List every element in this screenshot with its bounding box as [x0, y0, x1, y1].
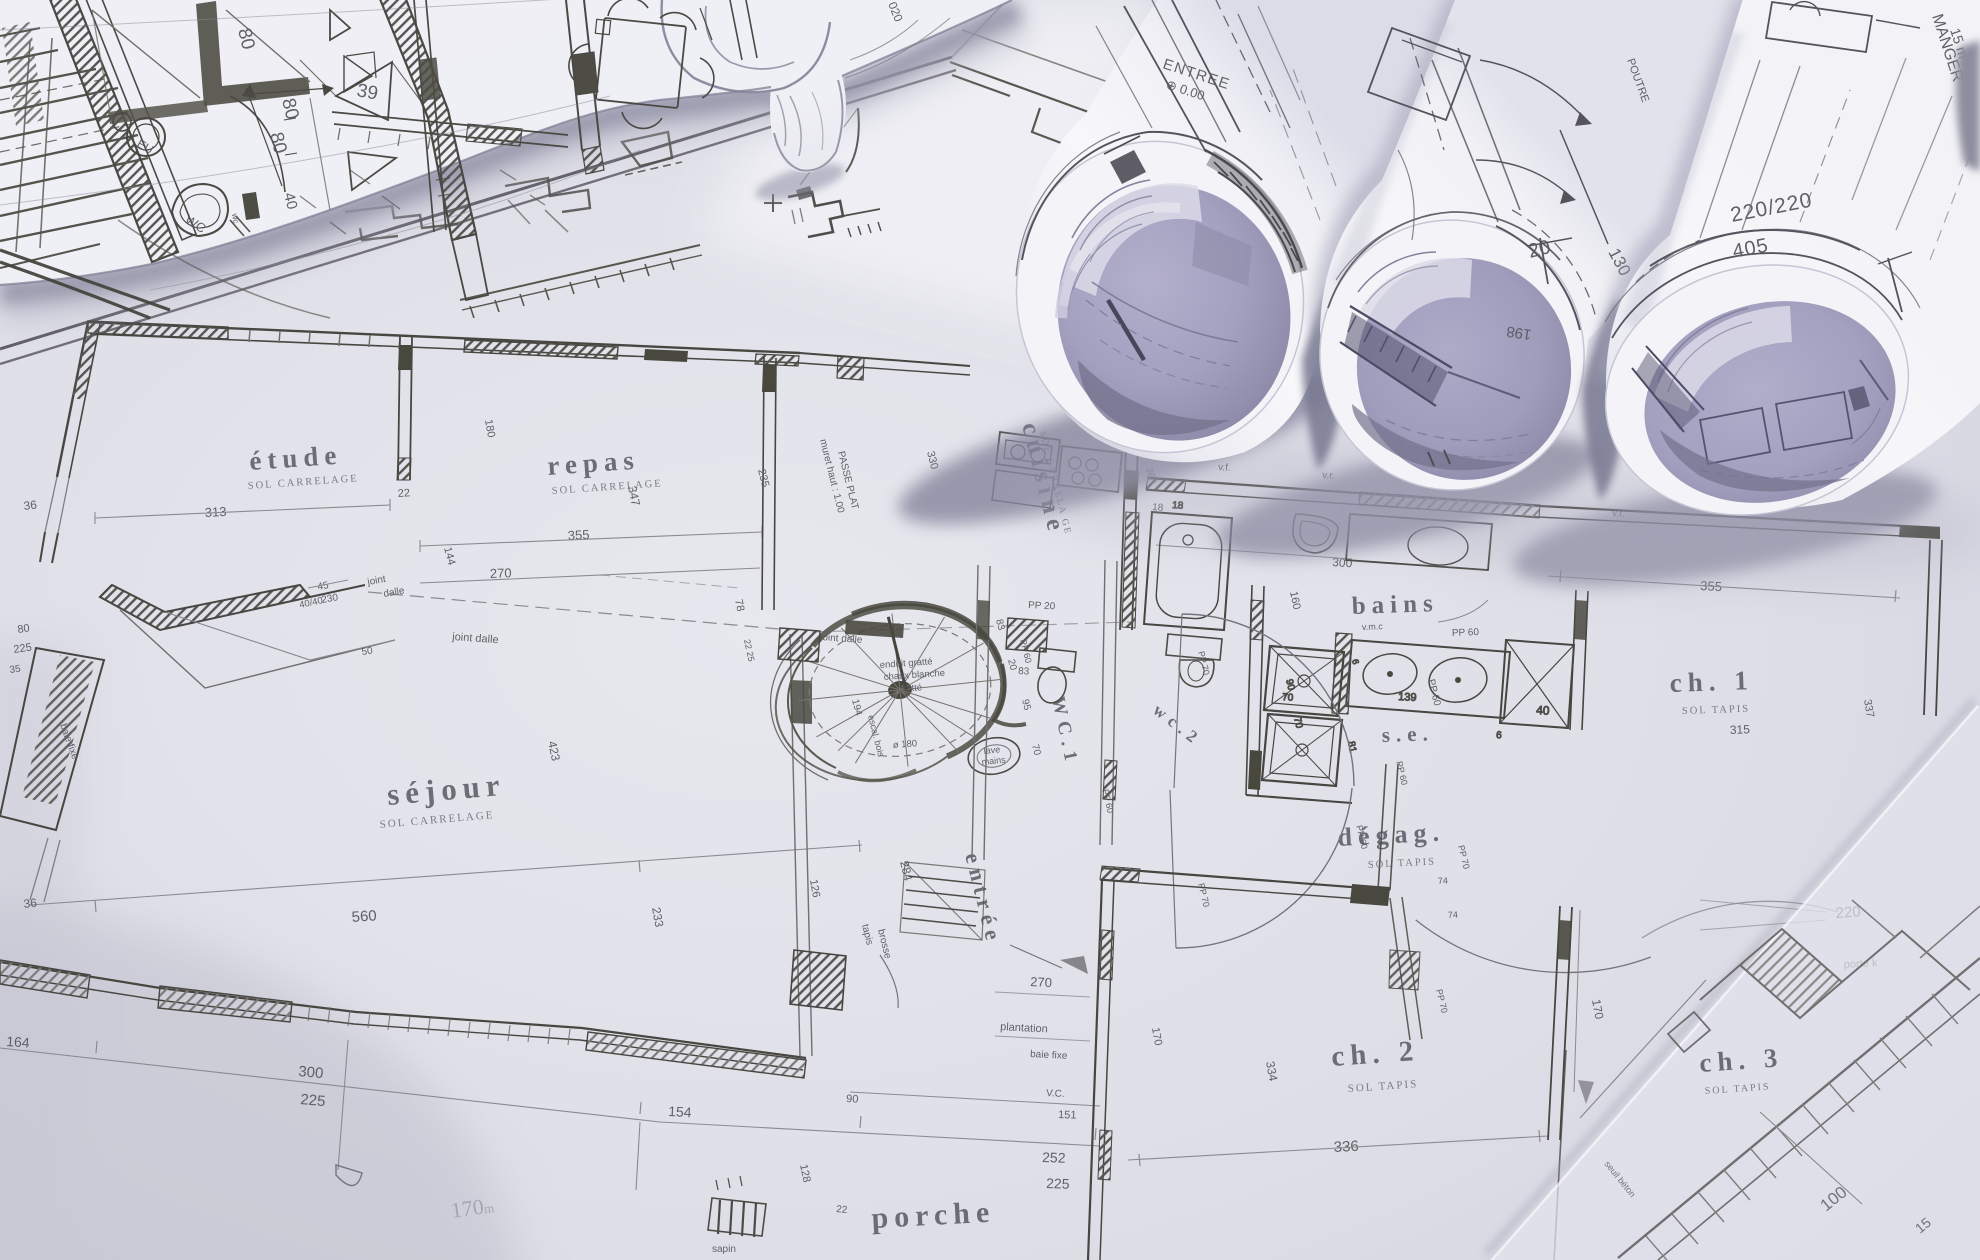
svg-text:560: 560 — [351, 907, 377, 926]
svg-text:35: 35 — [9, 663, 22, 676]
svg-text:bains: bains — [1351, 590, 1439, 620]
svg-text:36: 36 — [23, 896, 38, 911]
svg-text:ø 180: ø 180 — [892, 738, 917, 751]
svg-text:36: 36 — [23, 498, 38, 513]
svg-text:40: 40 — [1536, 703, 1550, 718]
svg-text:300: 300 — [298, 1063, 324, 1082]
svg-text:V.C.: V.C. — [1046, 1088, 1065, 1100]
svg-text:252: 252 — [1042, 1149, 1066, 1166]
svg-text:PP 20: PP 20 — [1028, 600, 1056, 612]
svg-text:355: 355 — [567, 527, 589, 543]
svg-text:gratté: gratté — [897, 682, 922, 695]
svg-text:22: 22 — [836, 1204, 848, 1216]
svg-text:6: 6 — [1496, 730, 1503, 741]
svg-text:s.e.: s.e. — [1381, 721, 1434, 747]
svg-text:74: 74 — [1448, 909, 1459, 920]
svg-text:sapin: sapin — [712, 1244, 736, 1255]
svg-text:151: 151 — [1058, 1109, 1077, 1122]
svg-text:154: 154 — [668, 1103, 692, 1120]
svg-text:83: 83 — [1018, 666, 1030, 678]
svg-text:porche: porche — [871, 1196, 996, 1235]
svg-text:22: 22 — [397, 487, 410, 500]
svg-text:139: 139 — [1398, 691, 1417, 704]
svg-text:315: 315 — [1730, 722, 1751, 737]
svg-text:80: 80 — [17, 622, 31, 636]
svg-text:ch. 3: ch. 3 — [1698, 1042, 1784, 1078]
svg-text:270: 270 — [1030, 974, 1052, 990]
svg-text:225: 225 — [1046, 1175, 1070, 1192]
svg-text:plantation: plantation — [1000, 1021, 1048, 1035]
svg-text:70: 70 — [1282, 692, 1294, 704]
svg-text:74: 74 — [1438, 875, 1449, 886]
svg-text:v.m.c: v.m.c — [1362, 621, 1384, 632]
svg-text:78: 78 — [732, 598, 746, 612]
svg-text:50: 50 — [361, 645, 374, 658]
svg-text:225: 225 — [300, 1091, 326, 1110]
svg-text:PP 60: PP 60 — [1452, 627, 1480, 639]
svg-text:ch. 2: ch. 2 — [1330, 1035, 1420, 1073]
svg-text:90: 90 — [846, 1093, 859, 1106]
svg-text:198: 198 — [1505, 323, 1532, 343]
svg-text:baie fixe: baie fixe — [1030, 1049, 1068, 1062]
svg-text:164: 164 — [6, 1033, 31, 1051]
svg-text:dégag.: dégag. — [1337, 817, 1446, 852]
svg-text:wc: wc — [230, 212, 241, 224]
svg-text:225: 225 — [13, 642, 33, 656]
svg-text:ch. 1: ch. 1 — [1669, 665, 1754, 698]
